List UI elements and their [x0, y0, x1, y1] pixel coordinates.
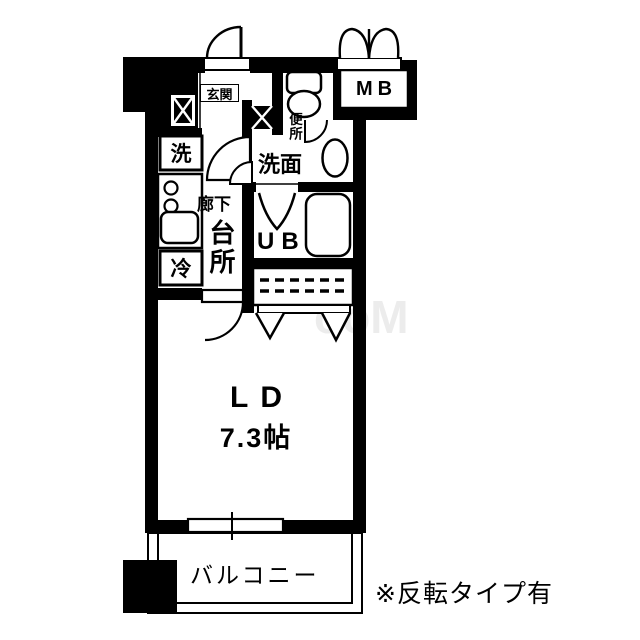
living-door-swing-icon: [205, 302, 243, 340]
folding-door-icon: [256, 313, 284, 338]
toilet-label: 便所: [284, 112, 304, 141]
washing-machine-label: 洗: [160, 136, 202, 170]
entrance-sill: [204, 58, 250, 70]
floor-plan: ooM: [0, 0, 640, 640]
double-door-swing-icon-left: [340, 29, 369, 58]
stove-burner-icon-2: [165, 200, 178, 213]
entrance-label: 玄関: [200, 84, 239, 102]
pillar-bottom-left: [123, 560, 177, 613]
bathtub-icon: [306, 194, 350, 256]
entrance-door-swing-icon: [207, 27, 241, 58]
floor-plan-drawing: [0, 0, 640, 640]
window-icon: [188, 519, 283, 532]
stove-burner-icon: [165, 182, 178, 195]
wall-entrance-toilet-divider: [272, 73, 283, 135]
closet-front-bar: [258, 305, 350, 313]
entrance-label-text: 玄関: [206, 84, 232, 103]
living-dining-label: LD 7.3帖: [158, 381, 354, 455]
wall-living-bottom-left: [145, 520, 188, 533]
wall-unit-bath-top-right: [298, 182, 353, 192]
refrigerator-label: 冷: [160, 251, 202, 285]
wall-right: [353, 118, 366, 533]
washroom-label: 洗面: [258, 147, 302, 179]
wall-kitchen-living-divider: [145, 288, 202, 300]
double-door-swing-icon-right: [369, 29, 398, 58]
balcony-label: バルコニー: [190, 556, 320, 590]
kitchen-label: 台所: [203, 219, 240, 277]
unit-bath-label: UB: [257, 228, 306, 256]
corridor-label: 廊下: [197, 190, 231, 215]
meter-box-sill: [337, 58, 401, 70]
wall-living-bottom-right: [283, 520, 366, 533]
folding-door-icon-2: [322, 313, 350, 340]
toilet-door-swing-icon: [305, 120, 327, 142]
living-dining-size: 7.3帖: [158, 416, 354, 455]
wall-top-center-band: [250, 57, 341, 73]
wall-left: [145, 112, 158, 533]
unit-bath-folding-door-icon: [259, 193, 295, 229]
meter-box-label: MB: [340, 70, 408, 108]
note-label: ※反転タイプ有: [375, 574, 553, 610]
wall-top-left-band: [180, 57, 205, 73]
washbasin-icon: [323, 140, 348, 177]
kitchen-sink-icon: [161, 212, 198, 243]
living-dining-name: LD: [158, 381, 354, 415]
closet-box: [253, 268, 353, 305]
living-door-leaf: [202, 290, 243, 302]
